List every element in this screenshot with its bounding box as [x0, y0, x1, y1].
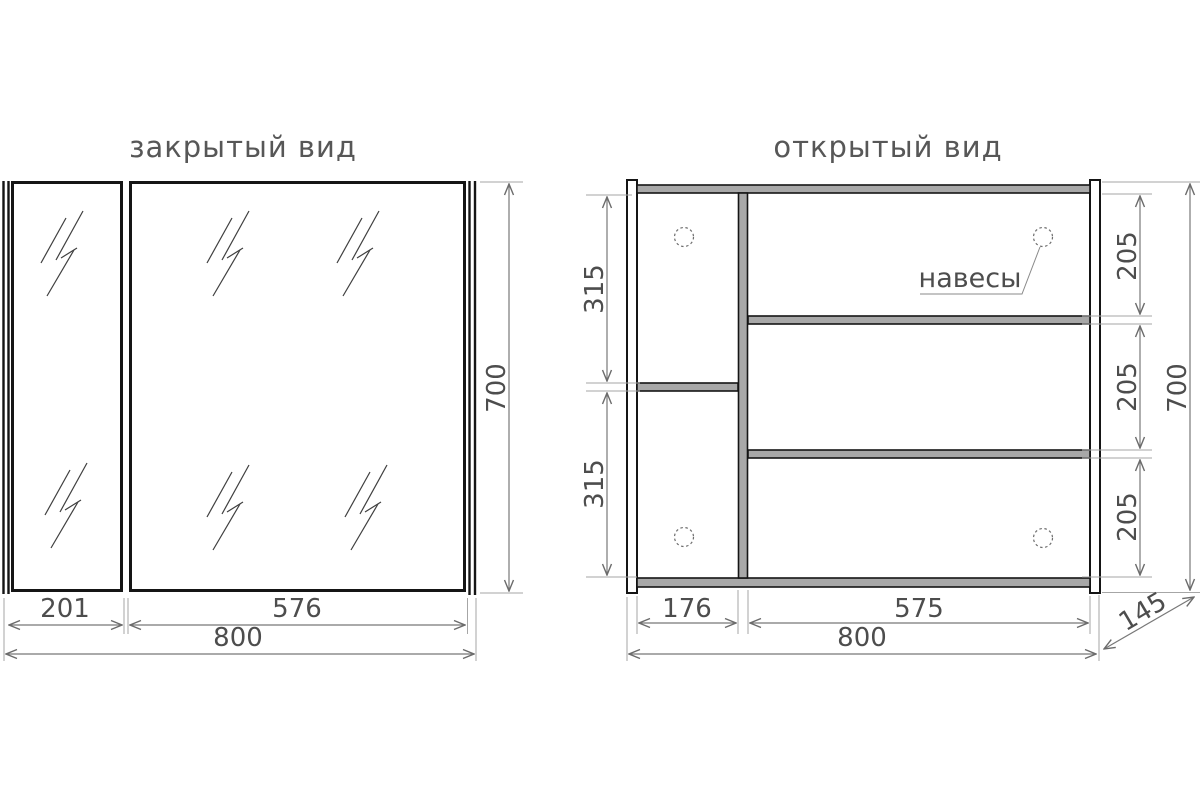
dim-value-total-width-open: 800 [837, 623, 887, 653]
dim-value-depth: 145 [1114, 587, 1172, 638]
dim-value-height-closed: 700 [482, 363, 512, 413]
open-bottom-panel [637, 578, 1090, 587]
dim-value-shelf-gap-1: 205 [1113, 231, 1143, 281]
open-vertical-divider [739, 193, 748, 578]
closed-left-mirror-door [13, 183, 122, 591]
cabinet-drawing-canvas: закрытый вид 201 576 800 700 [0, 0, 1200, 800]
dim-value-height-open: 700 [1163, 363, 1193, 413]
open-left-section-shelf [637, 383, 738, 391]
dim-value-left-door-width: 201 [40, 594, 90, 624]
dim-value-right-section-width: 575 [894, 594, 944, 624]
hinge-marker-top-right [1034, 228, 1053, 247]
dim-value-shelf-gap-3: 205 [1113, 492, 1143, 542]
open-right-side-panel [1090, 180, 1100, 593]
open-view-title: открытый вид [773, 130, 1002, 164]
closed-view-title: закрытый вид [129, 130, 357, 164]
technical-drawing-page: закрытый вид 201 576 800 700 [0, 0, 1200, 800]
hinge-marker-bottom-right [1034, 529, 1053, 548]
dim-value-total-width-closed: 800 [213, 623, 263, 653]
open-right-shelf-1 [748, 316, 1090, 324]
closed-view: закрытый вид 201 576 800 700 [4, 130, 524, 661]
open-left-side-panel [627, 180, 637, 593]
dim-value-main-door-width: 576 [272, 594, 322, 624]
closed-main-mirror-door [131, 183, 465, 591]
open-right-shelf-2 [748, 450, 1090, 458]
dim-value-shelf-gap-2: 205 [1113, 362, 1143, 412]
dim-value-left-section-bottom: 315 [580, 459, 610, 509]
hinge-callout-label: навесы [919, 263, 1022, 294]
hinge-marker-top-left [675, 228, 694, 247]
hinge-marker-bottom-left [675, 528, 694, 547]
open-top-panel [637, 185, 1090, 193]
dim-value-left-section-top: 315 [580, 264, 610, 314]
open-view: открытый вид навесы [580, 130, 1200, 661]
dim-value-left-section-width: 176 [662, 594, 712, 624]
